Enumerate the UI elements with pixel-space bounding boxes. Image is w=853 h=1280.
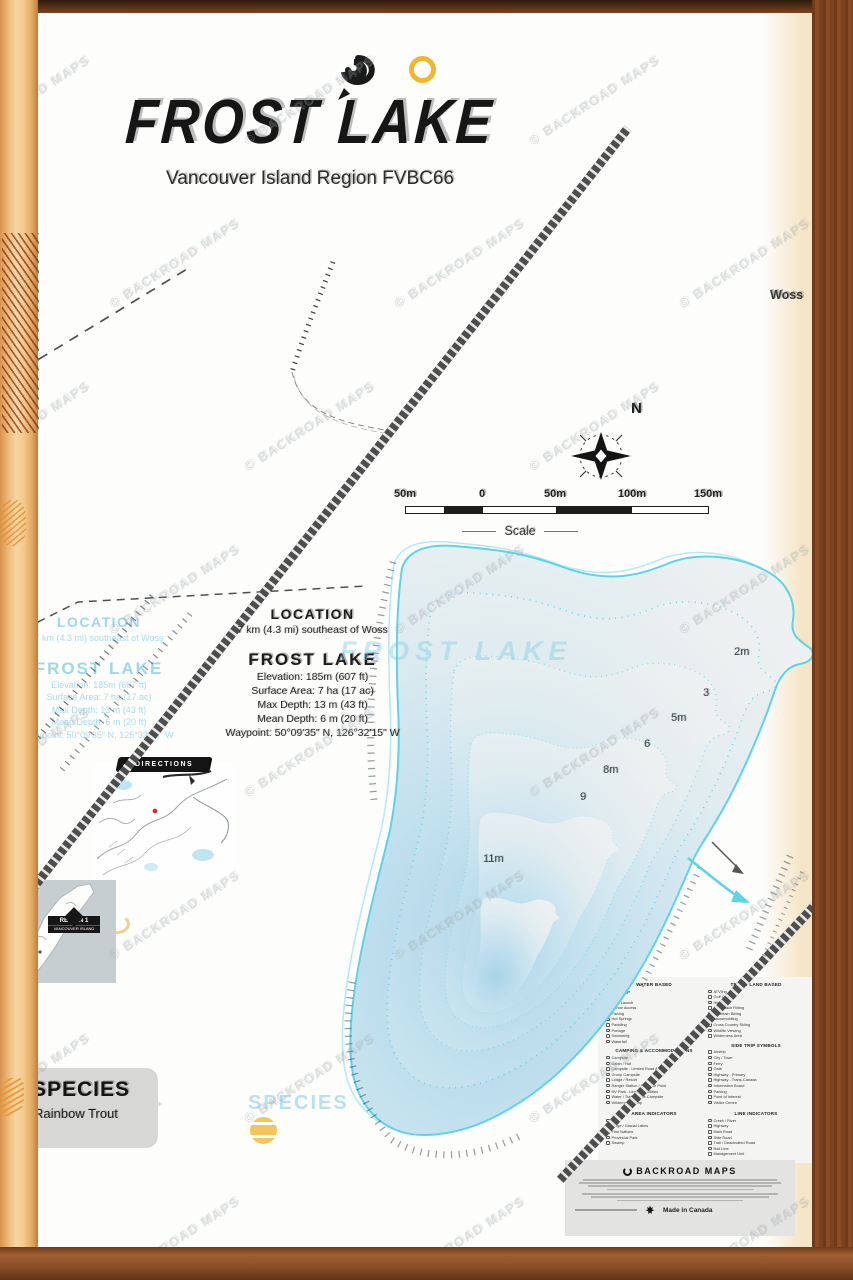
publisher-brand: BACKROAD MAPS — [575, 1166, 785, 1176]
legend-section-title: CAMPING & ACCOMMODATIONS — [606, 1048, 702, 1053]
legend-section-title: TRAIL / LAND BASED — [708, 982, 804, 987]
legend-section-title: AREA INDICATORS — [606, 1111, 702, 1116]
species-heading: SPECIES — [32, 1078, 158, 1102]
directions-label: DIRECTIONS — [135, 761, 193, 768]
ghost-location-heading: LOCATION — [24, 614, 174, 630]
frame-hatch-marks — [2, 233, 39, 433]
scale-label-3: 100m — [618, 488, 646, 500]
legend-item: Waterfall — [606, 1039, 702, 1045]
legend-section-title: WATER BASED — [606, 982, 702, 987]
legend-item: Visitor Centre — [708, 1100, 804, 1106]
brand-swirl-icon — [623, 1167, 632, 1176]
maple-leaf-icon — [645, 1205, 655, 1215]
lake-stat-line: Elevation: 185m (607 ft) — [205, 670, 420, 684]
gold-ring-icon — [409, 56, 436, 83]
location-heading: LOCATION — [205, 606, 420, 622]
lake-stat-line: Elevation: 185m (607 ft) — [24, 679, 174, 692]
scale-bar — [405, 506, 709, 514]
ghost-lake-stats: Elevation: 185m (607 ft)Surface Area: 7 … — [24, 679, 174, 742]
poster-title: FROST LAKE — [108, 87, 512, 159]
footer-bottom-row: Made in Canada — [575, 1205, 785, 1215]
location-text: 7 km (4.3 mi) southeast of Woss — [205, 624, 420, 636]
scale-dash-right — [544, 531, 578, 532]
legend-column-1: WATER BASEDAnchorageBeachBoat LaunchCano… — [603, 981, 705, 1110]
lake-stat-line: Waypoint: 50°09'35" N, 126°32'15" W — [24, 729, 174, 742]
framed-lake-map-poster: LOCATION 7 km (4.3 mi) southeast of Woss… — [0, 0, 853, 1280]
copyright-text-bar — [575, 1209, 637, 1211]
lake-stats: Elevation: 185m (607 ft)Surface Area: 7 … — [205, 670, 420, 740]
lake-stat-line: Max Depth: 13 m (43 ft) — [24, 704, 174, 717]
legend-item: Management Unit — [708, 1151, 804, 1157]
depth-label-11m: 11m — [483, 853, 504, 865]
legend-section: LINE INDICATORSCreek / RiverHighwayMain … — [708, 1111, 804, 1157]
lake-stat-line: Waypoint: 50°09'35" N, 126°32'15" W — [205, 726, 420, 740]
ghost-location-block: LOCATION 7 km (4.3 mi) southeast of Woss… — [24, 614, 174, 741]
ghost-lake-title: FROST LAKE — [340, 636, 770, 667]
inset-directions-map: DIRECTIONS — [93, 763, 235, 883]
gold-fish-badge — [250, 1117, 277, 1144]
depth-label-6: 6 — [644, 738, 650, 750]
legend-column-3: AREA INDICATORSLakeLarge / Glacial Lakes… — [603, 1110, 705, 1162]
legend-section-title: LINE INDICATORS — [708, 1111, 804, 1116]
scale-label-0: 50m — [394, 488, 416, 500]
made-in-canada-label: Made in Canada — [663, 1207, 712, 1214]
scale-label-2: 50m — [544, 488, 566, 500]
legend-section: SIDE TRIP SYMBOLSAirstripCity / TownFerr… — [708, 1043, 804, 1105]
depth-label-8m: 8m — [603, 764, 618, 776]
north-label: N — [631, 400, 642, 417]
lake-stat-line: Max Depth: 13 m (43 ft) — [205, 698, 420, 712]
frame-right — [812, 0, 853, 1280]
legend-section: AREA INDICATORSLakeLarge / Glacial Lakes… — [606, 1111, 702, 1145]
map-legend: WATER BASEDAnchorageBeachBoat LaunchCano… — [598, 977, 812, 1163]
legend-section: WATER BASEDAnchorageBeachBoat LaunchCano… — [606, 982, 702, 1044]
lake-stat-line: Surface Area: 7 ha (17 ac) — [24, 691, 174, 704]
frame-top — [0, 0, 853, 13]
legend-section: CAMPING & ACCOMMODATIONSCampsiteCabin / … — [606, 1048, 702, 1105]
depth-label-5m: 5m — [671, 712, 686, 724]
scale-dash-left — [462, 531, 496, 532]
legend-column-4: LINE INDICATORSCreek / RiverHighwayMain … — [705, 1110, 807, 1162]
publisher-name: BACKROAD MAPS — [636, 1166, 737, 1176]
poster-subtitle: Vancouver Island Region FVBC66 — [110, 168, 510, 190]
directions-map-graphic — [93, 763, 235, 883]
legend-item: Swamp — [606, 1140, 702, 1146]
legend-column-2: TRAIL / LAND BASEDATV'ingGolf CourseHiki… — [705, 981, 807, 1110]
scale-label-1: 0 — [479, 488, 485, 500]
lake-stat-line: Surface Area: 7 ha (17 ac) — [205, 684, 420, 698]
lake-stat-line: Mean Depth: 6 m (20 ft) — [24, 716, 174, 729]
place-label-woss: Woss — [770, 288, 803, 302]
legend-item: Wilderness Camp — [606, 1100, 702, 1106]
scale-caption-text: Scale — [504, 524, 535, 538]
ghost-location-text: 7 km (4.3 mi) southeast of Woss — [24, 632, 174, 645]
lake-stat-line: Mean Depth: 6 m (20 ft) — [205, 712, 420, 726]
location-info-block: LOCATION 7 km (4.3 mi) southeast of Woss… — [205, 606, 420, 740]
scale-caption: Scale — [420, 524, 620, 538]
ghost-species-heading: SPECIES — [248, 1092, 349, 1115]
frame-bottom — [0, 1247, 853, 1280]
legend-item: Wilderness Area — [708, 1033, 804, 1039]
depth-label-3: 3 — [703, 687, 709, 699]
species-item: Rainbow Trout — [34, 1106, 158, 1121]
directions-banner: DIRECTIONS — [115, 757, 212, 772]
frame-gold-fish-mark — [0, 1078, 24, 1116]
legend-section-title: SIDE TRIP SYMBOLS — [708, 1043, 804, 1048]
legend-section: TRAIL / LAND BASEDATV'ingGolf CourseHiki… — [708, 982, 804, 1039]
scale-label-4: 150m — [694, 488, 722, 500]
publisher-footer: BACKROAD MAPS Made in Canada — [565, 1160, 795, 1236]
depth-label-9: 9 — [580, 791, 586, 803]
fine-print — [575, 1179, 785, 1201]
frame-gold-scribble — [0, 500, 26, 546]
region-badge: REGION 1 VANCOUVER ISLAND — [48, 910, 100, 933]
ghost-lake-heading: FROST LAKE — [24, 659, 174, 679]
